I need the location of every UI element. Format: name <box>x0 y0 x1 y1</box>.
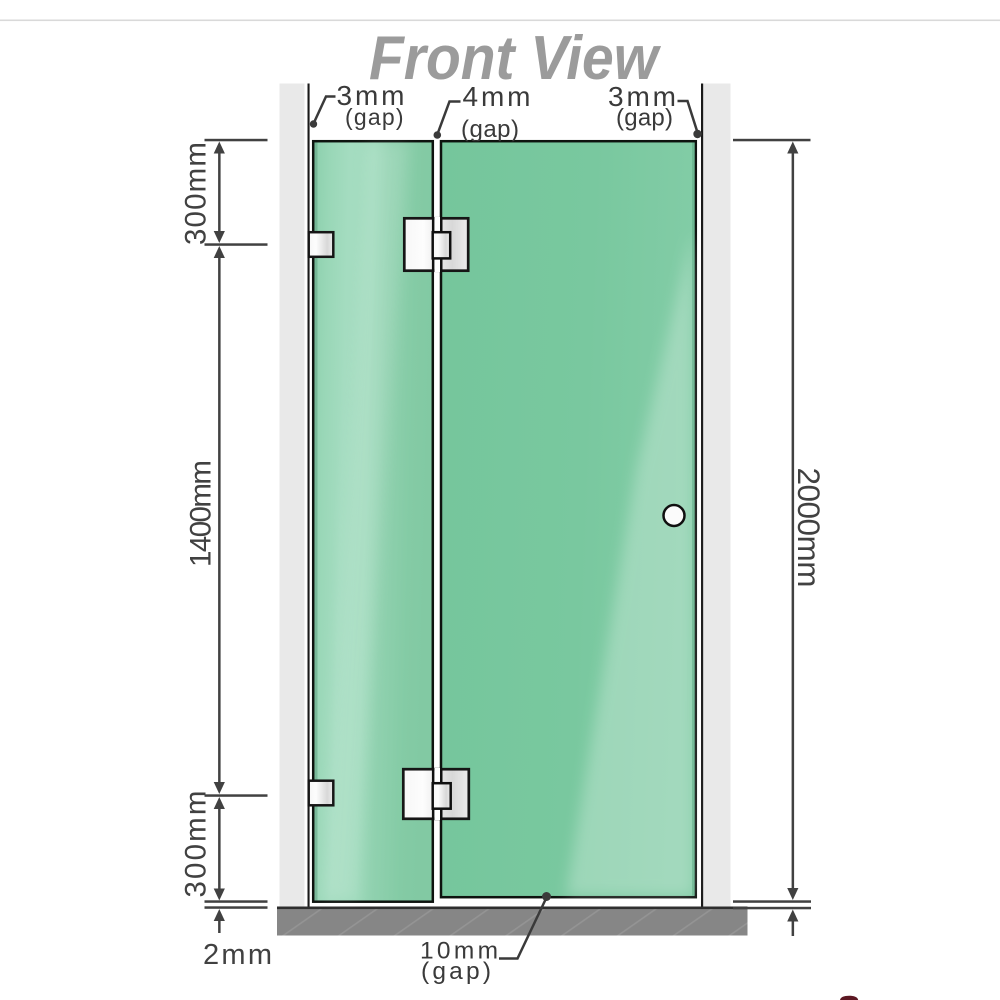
svg-text:300mm: 300mm <box>179 142 212 245</box>
svg-text:2000mm: 2000mm <box>791 468 827 588</box>
svg-text:2mm: 2mm <box>203 939 272 971</box>
svg-text:1400mm: 1400mm <box>184 460 217 567</box>
svg-text:(gap): (gap) <box>461 116 519 143</box>
svg-text:4mm: 4mm <box>463 81 531 112</box>
svg-text:(gap): (gap) <box>616 105 673 132</box>
svg-text:300mm: 300mm <box>179 791 212 898</box>
